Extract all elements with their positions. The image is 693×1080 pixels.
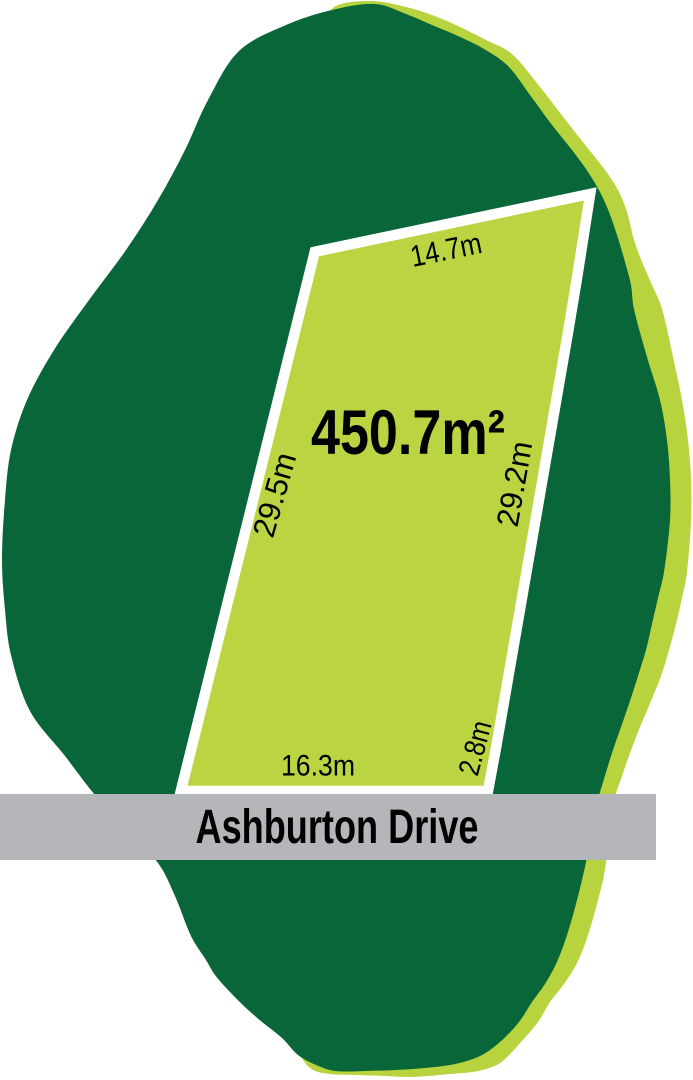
svg-text:450.7m²: 450.7m² — [311, 398, 505, 468]
svg-text:Ashburton Drive: Ashburton Drive — [196, 801, 479, 854]
svg-text:16.3m: 16.3m — [281, 750, 355, 783]
